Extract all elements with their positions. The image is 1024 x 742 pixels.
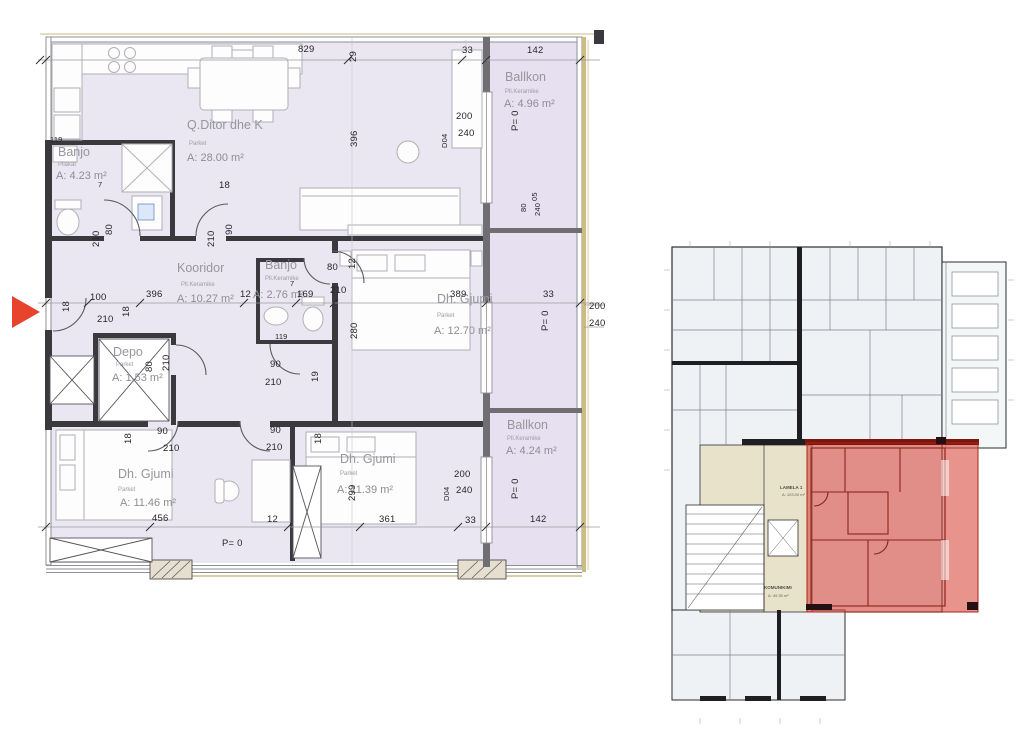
room-floor: Pll.Keramike [507, 436, 541, 442]
dim-label: P= 0 [511, 110, 521, 131]
dim-label: P= 0 [511, 478, 521, 499]
dim-label: 361 [379, 515, 395, 525]
overview-core-area: A: 103.00 m² [782, 493, 805, 497]
dim-label: 80 [327, 263, 338, 273]
dim-label: 12 [348, 258, 358, 269]
room-floor: Pll.Keramike [505, 89, 539, 95]
room-name: Dh. Gjumi [118, 468, 174, 482]
room-area: A: 4.96 m² [504, 99, 555, 110]
dim-label: 33 [462, 46, 473, 56]
dim-label: 456 [152, 514, 168, 524]
dim-label: 200 [456, 112, 472, 122]
overview-corridor-label: KOMUNIKIMI [764, 586, 792, 591]
room-floor: Parket [340, 471, 357, 477]
dim-label: 280 [350, 323, 360, 339]
room-name: Banjo [58, 146, 90, 160]
dim-label: 210 [207, 231, 217, 247]
dim-label: 829 [298, 45, 314, 55]
dim-label: 210 [163, 444, 179, 454]
room-floor: Pll.Keramike [181, 282, 215, 288]
dim-label: 200 [589, 302, 605, 312]
dim-label: 05 [531, 192, 539, 201]
room-floor: Parket [116, 362, 133, 368]
dim-label: 200 [454, 470, 470, 480]
dim-label: 240 [589, 319, 605, 329]
dim-label: 169 [297, 290, 313, 300]
dim-label: 299 [348, 485, 358, 501]
dim-label: 18 [62, 301, 72, 312]
room-floor: Parket [118, 487, 135, 493]
dim-label: 19 [311, 371, 321, 382]
dim-label: 396 [146, 290, 162, 300]
room-area: A: 11.46 m² [120, 498, 176, 509]
dim-label: 240 [534, 203, 542, 216]
dim-label: 18 [124, 433, 134, 444]
plan-labels: Banjo Pllakat A: 4.23 m² Q.Ditor dhe K P… [0, 0, 1024, 742]
dim-label: 33 [543, 290, 554, 300]
dim-label: 7 [290, 280, 294, 288]
dim-label: 119 [50, 136, 63, 144]
dim-label: 240 [458, 129, 474, 139]
dim-label: 12 [267, 515, 278, 525]
dim-label: 100 [90, 293, 106, 303]
dim-label: D04 [443, 487, 451, 501]
dim-label: 12 [240, 290, 251, 300]
room-name: Banjo [265, 259, 297, 273]
dim-label: 240 [456, 486, 472, 496]
room-floor: Pllakat [58, 162, 76, 168]
dim-label: 29 [349, 51, 359, 62]
room-name: Kooridor [177, 262, 224, 276]
dim-label: 119 [275, 333, 288, 341]
dim-label: 210 [265, 378, 281, 388]
room-floor: Parket [437, 313, 454, 319]
room-area: A: 11.39 m² [337, 485, 393, 496]
overview-core-label: LAMELA 1 [780, 486, 802, 491]
dim-label: 18 [219, 181, 230, 191]
dim-label: 80 [520, 203, 528, 212]
room-name: Ballkon [505, 71, 546, 85]
dim-label: 18 [122, 306, 132, 317]
room-name: Q.Ditor dhe K [187, 119, 263, 133]
room-name: Depo [113, 346, 143, 360]
dim-label: D04 [441, 134, 449, 148]
floorplan-sheet: Banjo Pllakat A: 4.23 m² Q.Ditor dhe K P… [0, 0, 1024, 742]
dim-label: 210 [266, 443, 282, 453]
dim-label: 7 [98, 181, 102, 189]
dim-label: 80 [145, 361, 155, 372]
room-name: Ballkon [507, 419, 548, 433]
room-area: A: 1.53 m² [112, 373, 163, 384]
dim-label: P= 0 [541, 310, 551, 331]
room-area: A: 4.24 m² [506, 446, 557, 457]
dim-label: 90 [225, 224, 235, 235]
dim-label: 210 [92, 231, 102, 247]
room-area: A: 10.27 m² [177, 294, 234, 305]
dim-label: 33 [465, 516, 476, 526]
dim-label: 210 [330, 286, 346, 296]
dim-label: 396 [350, 131, 360, 147]
dim-label: 90 [270, 360, 281, 370]
dim-label: 389 [450, 290, 466, 300]
dim-label: 90 [270, 426, 281, 436]
room-area: A: 28.00 m² [187, 153, 244, 164]
dim-label: 80 [105, 224, 115, 235]
room-floor: Parket [189, 141, 206, 147]
dim-label: 142 [527, 46, 543, 56]
dim-label: 18 [314, 433, 324, 444]
dim-label: P= 0 [222, 539, 243, 549]
room-name: Dh. Gjumi [340, 453, 396, 467]
dim-label: 90 [157, 427, 168, 437]
dim-label: 210 [162, 355, 172, 371]
room-area: A: 12.70 m² [434, 326, 491, 337]
dim-label: 142 [530, 515, 546, 525]
dim-label: 210 [97, 315, 113, 325]
overview-corridor-area: A: 49.30 m² [768, 594, 789, 598]
